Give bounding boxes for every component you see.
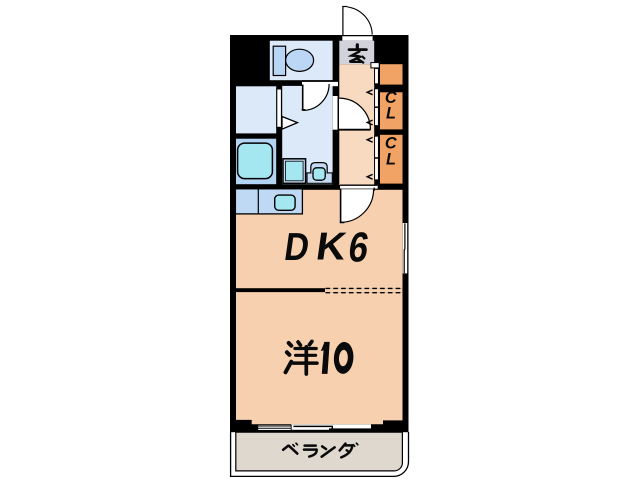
svg-text:L: L (386, 105, 396, 123)
svg-text:L: L (386, 150, 396, 168)
svg-text:K: K (314, 226, 349, 269)
